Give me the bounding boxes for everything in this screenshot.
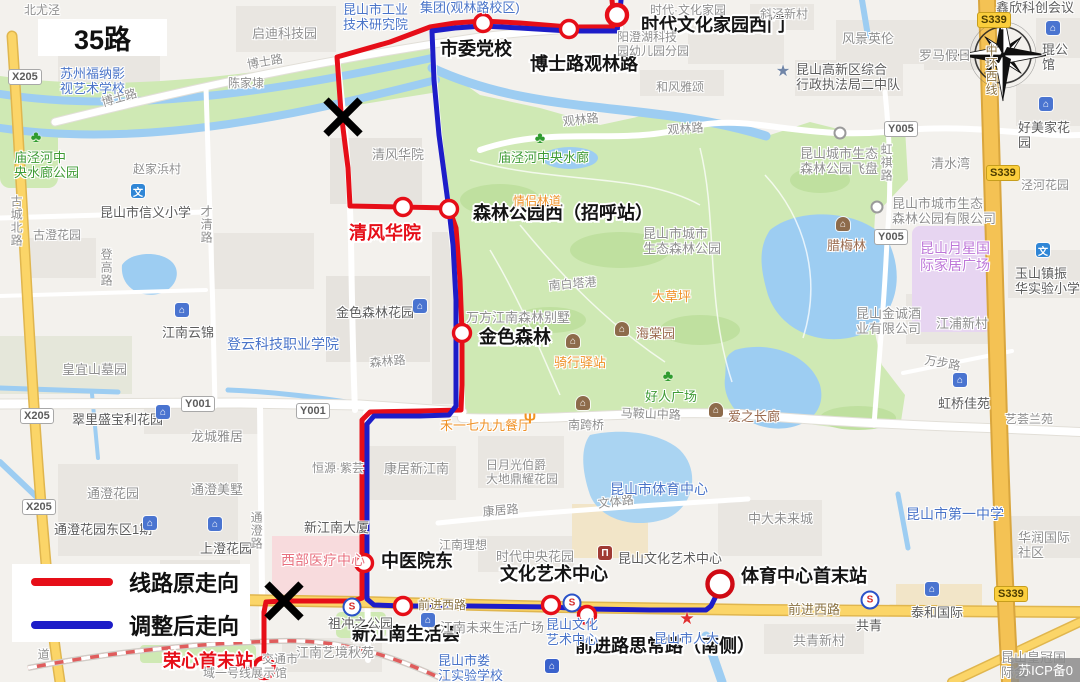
station-marker [395,199,412,216]
original-route-swatch [31,578,113,586]
mall-area [912,226,992,332]
route-title: 35路 [74,18,131,57]
station-marker [395,598,412,615]
station-marker [356,555,373,572]
bus-route-map: 市委党校博士路观林路时代文化家园西门森林公园西（招呼站）清风华院金色森林中医院东… [0,0,1080,682]
station-marker [254,658,274,678]
station-marker [561,21,578,38]
legend-row-adjusted: 调整后走向 [12,609,250,641]
hospital-area [272,536,360,600]
station-marker [607,5,627,25]
station-marker [454,325,471,342]
adjusted-route-swatch [31,621,113,629]
icp-watermark: 苏ICP备0 [1011,658,1080,682]
adjusted-route-label: 调整后走向 [129,609,239,641]
station-marker [708,572,733,597]
station-marker [543,597,560,614]
station-marker [579,607,596,624]
legend-row-original: 线路原走向 [12,566,250,598]
station-marker [475,15,492,32]
original-route-label: 线路原走向 [129,566,239,598]
route-title-box: 35路 [38,19,167,56]
legend: 线路原走向 调整后走向 [12,564,250,642]
station-marker [441,201,458,218]
